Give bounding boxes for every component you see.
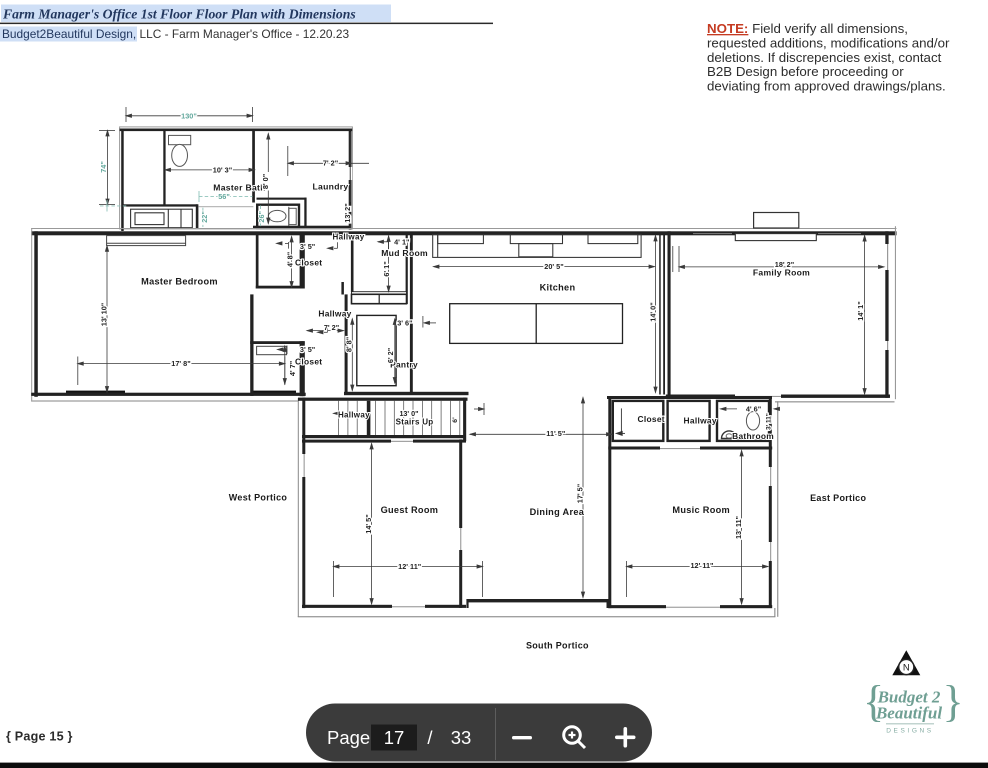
- svg-text:Hallway: Hallway: [684, 415, 717, 425]
- svg-text:13' 0": 13' 0": [399, 409, 418, 418]
- svg-text:17: 17: [384, 727, 405, 748]
- svg-text:12' 11": 12' 11": [398, 562, 421, 571]
- svg-text:4' 1": 4' 1": [394, 237, 409, 246]
- svg-text:South Portico: South Portico: [526, 641, 589, 651]
- svg-text:Laundry: Laundry: [312, 182, 348, 192]
- svg-text:6': 6': [452, 417, 459, 423]
- svg-text:Closet: Closet: [295, 357, 322, 367]
- svg-text:26": 26": [257, 211, 266, 223]
- svg-text:deviating from approved drawin: deviating from approved drawings/plans.: [707, 79, 946, 94]
- svg-text:Bathroom: Bathroom: [732, 431, 774, 441]
- svg-text:Page: Page: [327, 727, 370, 748]
- svg-text:Dining Area: Dining Area: [530, 507, 585, 517]
- svg-text:11' 5": 11' 5": [546, 429, 565, 438]
- svg-text:Hallway: Hallway: [338, 411, 370, 420]
- svg-text:8' 0": 8' 0": [261, 174, 270, 189]
- svg-text:Guest Room: Guest Room: [381, 505, 439, 515]
- svg-text:3' 5": 3' 5": [300, 242, 315, 251]
- svg-text:Budget2Beautiful Design, LLC -: Budget2Beautiful Design, LLC - Farm Mana…: [2, 27, 349, 41]
- svg-text:18' 2": 18' 2": [775, 260, 794, 269]
- svg-text:West Portico: West Portico: [229, 492, 288, 502]
- svg-text:Master Bedroom: Master Bedroom: [141, 276, 218, 286]
- svg-text:4' 8": 4' 8": [285, 252, 294, 267]
- svg-text:4' 6": 4' 6": [746, 404, 761, 413]
- svg-text:130": 130": [181, 111, 197, 120]
- svg-text:10' 3": 10' 3": [213, 165, 232, 174]
- svg-text:33: 33: [451, 727, 472, 748]
- svg-text:7' 2": 7' 2": [323, 159, 338, 168]
- svg-text:NOTE: Field verify all dimensi: NOTE: Field verify all dimensions,: [707, 21, 908, 36]
- svg-text:14' 5": 14' 5": [364, 514, 373, 533]
- svg-text:22": 22": [200, 211, 209, 223]
- svg-text:Family Room: Family Room: [753, 268, 810, 278]
- svg-text:Music Room: Music Room: [672, 505, 730, 515]
- svg-text:7' 2": 7' 2": [324, 323, 339, 332]
- svg-text:Beautiful: Beautiful: [875, 704, 942, 723]
- svg-text:Stairs Up: Stairs Up: [396, 417, 434, 426]
- svg-text:74": 74": [99, 161, 108, 173]
- svg-text:Mud Room: Mud Room: [381, 248, 428, 258]
- svg-text:8' 8": 8' 8": [344, 337, 353, 352]
- svg-text:6' 2": 6' 2": [386, 348, 395, 363]
- svg-text:17' 8": 17' 8": [171, 359, 190, 368]
- svg-text:13' 2": 13' 2": [343, 203, 352, 222]
- svg-text:6' 1": 6' 1": [382, 261, 391, 276]
- svg-text:Closet: Closet: [637, 414, 664, 424]
- svg-text:N: N: [903, 663, 910, 674]
- svg-text:Hallway: Hallway: [318, 308, 351, 318]
- svg-text:/: /: [427, 727, 433, 748]
- svg-text:deletions. If discrepencies ex: deletions. If discrepencies exist, conta…: [707, 50, 942, 65]
- svg-text:13' 11": 13' 11": [734, 516, 743, 539]
- svg-text:requested additions, modificat: requested additions, modifications and/o…: [707, 35, 950, 50]
- svg-text:56": 56": [218, 192, 230, 201]
- svg-text:Master Bath: Master Bath: [213, 182, 266, 192]
- svg-text:3' 6": 3' 6": [397, 318, 412, 327]
- svg-text:Kitchen: Kitchen: [540, 282, 576, 292]
- svg-text:}: }: [943, 677, 964, 726]
- svg-text:East Portico: East Portico: [810, 493, 866, 503]
- svg-text:Hallway: Hallway: [333, 232, 365, 241]
- svg-text:14' 1": 14' 1": [856, 301, 865, 320]
- svg-text:13' 10": 13' 10": [99, 303, 108, 326]
- svg-text:DESIGNS: DESIGNS: [886, 728, 933, 735]
- svg-text:3' 11": 3' 11": [766, 413, 773, 430]
- svg-text:20' 5": 20' 5": [544, 262, 563, 271]
- svg-text:Farm Manager's Office 1st Floo: Farm Manager's Office 1st Floor Floor Pl…: [2, 7, 356, 22]
- svg-text:12' 11": 12' 11": [690, 561, 713, 570]
- svg-text:14' 0": 14' 0": [649, 302, 658, 321]
- svg-text:17' 5": 17' 5": [575, 484, 584, 503]
- svg-text:3' 5": 3' 5": [300, 345, 315, 354]
- svg-text:Closet: Closet: [295, 258, 322, 268]
- svg-text:{ Page 15 }: { Page 15 }: [6, 730, 73, 744]
- svg-text:B2B Design before proceeding o: B2B Design before proceeding or: [707, 64, 904, 79]
- svg-text:4' 7": 4' 7": [288, 361, 297, 376]
